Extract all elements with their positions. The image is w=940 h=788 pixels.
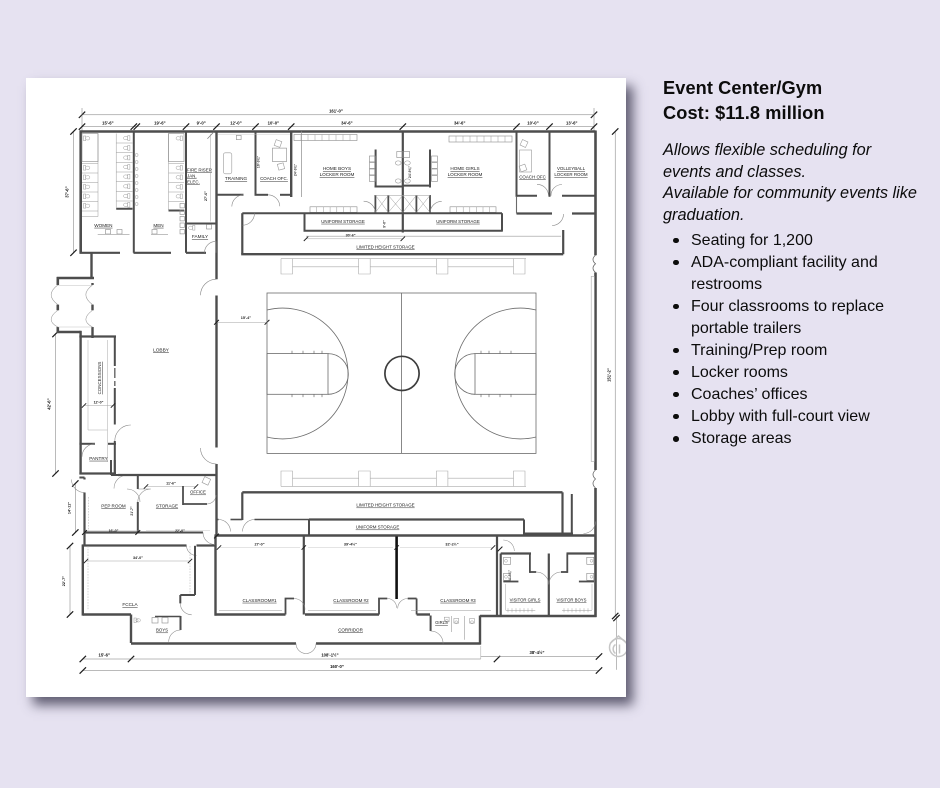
svg-text:27'-0”: 27'-0” <box>254 542 264 546</box>
svg-text:UNIFORM STORAGE: UNIFORM STORAGE <box>436 219 480 224</box>
svg-text:OFFICE: OFFICE <box>190 490 206 495</box>
svg-text:10'-0”: 10'-0” <box>527 120 538 125</box>
svg-text:LOCKER ROOM: LOCKER ROOM <box>554 172 588 177</box>
svg-text:HOME BOYS: HOME BOYS <box>323 166 351 171</box>
svg-text:34'-6”: 34'-6” <box>454 120 465 125</box>
svg-text:11'-6”: 11'-6” <box>166 481 176 485</box>
svg-text:HOME GIRLS: HOME GIRLS <box>450 166 479 171</box>
svg-text:TRAINING: TRAINING <box>225 176 248 181</box>
svg-text:MEN: MEN <box>153 223 163 228</box>
svg-text:CORRIDOR: CORRIDOR <box>338 627 363 632</box>
svg-text:COACH OFC.: COACH OFC. <box>260 176 288 181</box>
svg-text:12'-0”: 12'-0” <box>230 120 241 125</box>
svg-text:WOMEN: WOMEN <box>94 223 112 228</box>
svg-text:ELEC.: ELEC. <box>187 179 200 184</box>
svg-text:39'-4½”: 39'-4½” <box>344 542 357 546</box>
svg-text:9'-6”: 9'-6” <box>382 220 386 228</box>
svg-text:JAN.: JAN. <box>187 173 197 178</box>
svg-text:LIMITED HEIGHT STORAGE: LIMITED HEIGHT STORAGE <box>356 244 414 249</box>
svg-text:BOYS: BOYS <box>156 628 168 633</box>
svg-text:15'-4”: 15'-4” <box>241 316 252 320</box>
svg-text:13'-6”: 13'-6” <box>566 120 577 125</box>
svg-text:CLASSROOM #2: CLASSROOM #2 <box>333 598 369 603</box>
svg-text:FIRE RISER: FIRE RISER <box>187 167 212 172</box>
svg-text:22'-0”: 22'-0” <box>175 529 185 533</box>
svg-text:FAMILY: FAMILY <box>192 234 208 239</box>
svg-text:FCCLA: FCCLA <box>122 602 138 607</box>
svg-text:12'-0”: 12'-0” <box>94 400 104 404</box>
svg-text:UNIFORM STORAGE: UNIFORM STORAGE <box>356 525 400 530</box>
svg-text:161'-0”: 161'-0” <box>329 109 343 114</box>
svg-text:CONCESSIONS: CONCESSIONS <box>97 362 102 395</box>
svg-text:24'-3⅜”: 24'-3⅜” <box>294 164 298 176</box>
svg-text:LOCKER ROOM: LOCKER ROOM <box>448 172 483 177</box>
svg-text:VOLLEYBALL: VOLLEYBALL <box>557 166 586 171</box>
svg-text:21'-7”: 21'-7” <box>130 506 134 516</box>
svg-text:PEP ROOM: PEP ROOM <box>101 503 126 508</box>
svg-text:151'-2”: 151'-2” <box>607 368 612 382</box>
svg-text:160'-0”: 160'-0” <box>330 664 344 669</box>
svg-text:16'-3⅜”: 16'-3⅜” <box>257 156 261 168</box>
svg-text:9'-0”: 9'-0” <box>197 120 206 125</box>
svg-text:VISITOR BOYS: VISITOR BOYS <box>557 598 587 603</box>
svg-text:37'-6”: 37'-6” <box>65 186 70 197</box>
svg-text:10'-0”: 10'-0” <box>268 120 279 125</box>
svg-text:STORAGE: STORAGE <box>156 503 178 508</box>
svg-text:LOCKER ROOM: LOCKER ROOM <box>320 172 355 177</box>
svg-text:14'-11”: 14'-11” <box>67 502 71 514</box>
svg-text:15'-6”: 15'-6” <box>99 653 110 658</box>
svg-text:27'-6”: 27'-6” <box>204 191 208 201</box>
svg-text:LOBBY: LOBBY <box>153 347 170 353</box>
svg-text:22'-7”: 22'-7” <box>62 576 66 587</box>
svg-text:CLASSROOM#1: CLASSROOM#1 <box>242 598 277 603</box>
svg-text:LIMITED HEIGHT STORAGE: LIMITED HEIGHT STORAGE <box>356 503 414 508</box>
svg-text:VISITOR GIRLS: VISITOR GIRLS <box>510 598 541 603</box>
svg-text:38'-4½”: 38'-4½” <box>530 650 545 655</box>
svg-text:COACH OFC: COACH OFC <box>519 174 546 179</box>
svg-text:GIRLS: GIRLS <box>435 620 448 625</box>
svg-text:PANTRY: PANTRY <box>89 456 107 461</box>
svg-text:34'-6”: 34'-6” <box>341 120 352 125</box>
svg-text:24'-9⅜”: 24'-9⅜” <box>408 166 412 178</box>
svg-text:16'-0”: 16'-0” <box>109 529 119 533</box>
svg-text:42'-6”: 42'-6” <box>47 398 52 409</box>
svg-text:15'-6”: 15'-6” <box>102 120 113 125</box>
svg-text:32'-2½”: 32'-2½” <box>445 542 458 546</box>
svg-text:108'-1½”: 108'-1½” <box>321 653 338 658</box>
svg-text:19'-6”: 19'-6” <box>154 120 165 125</box>
svg-text:CLASSROOM #3: CLASSROOM #3 <box>440 598 476 603</box>
svg-text:UNIFORM STORAGE: UNIFORM STORAGE <box>321 219 365 224</box>
svg-text:34'-0”: 34'-0” <box>133 556 143 560</box>
svg-text:30'-6”: 30'-6” <box>346 234 356 238</box>
